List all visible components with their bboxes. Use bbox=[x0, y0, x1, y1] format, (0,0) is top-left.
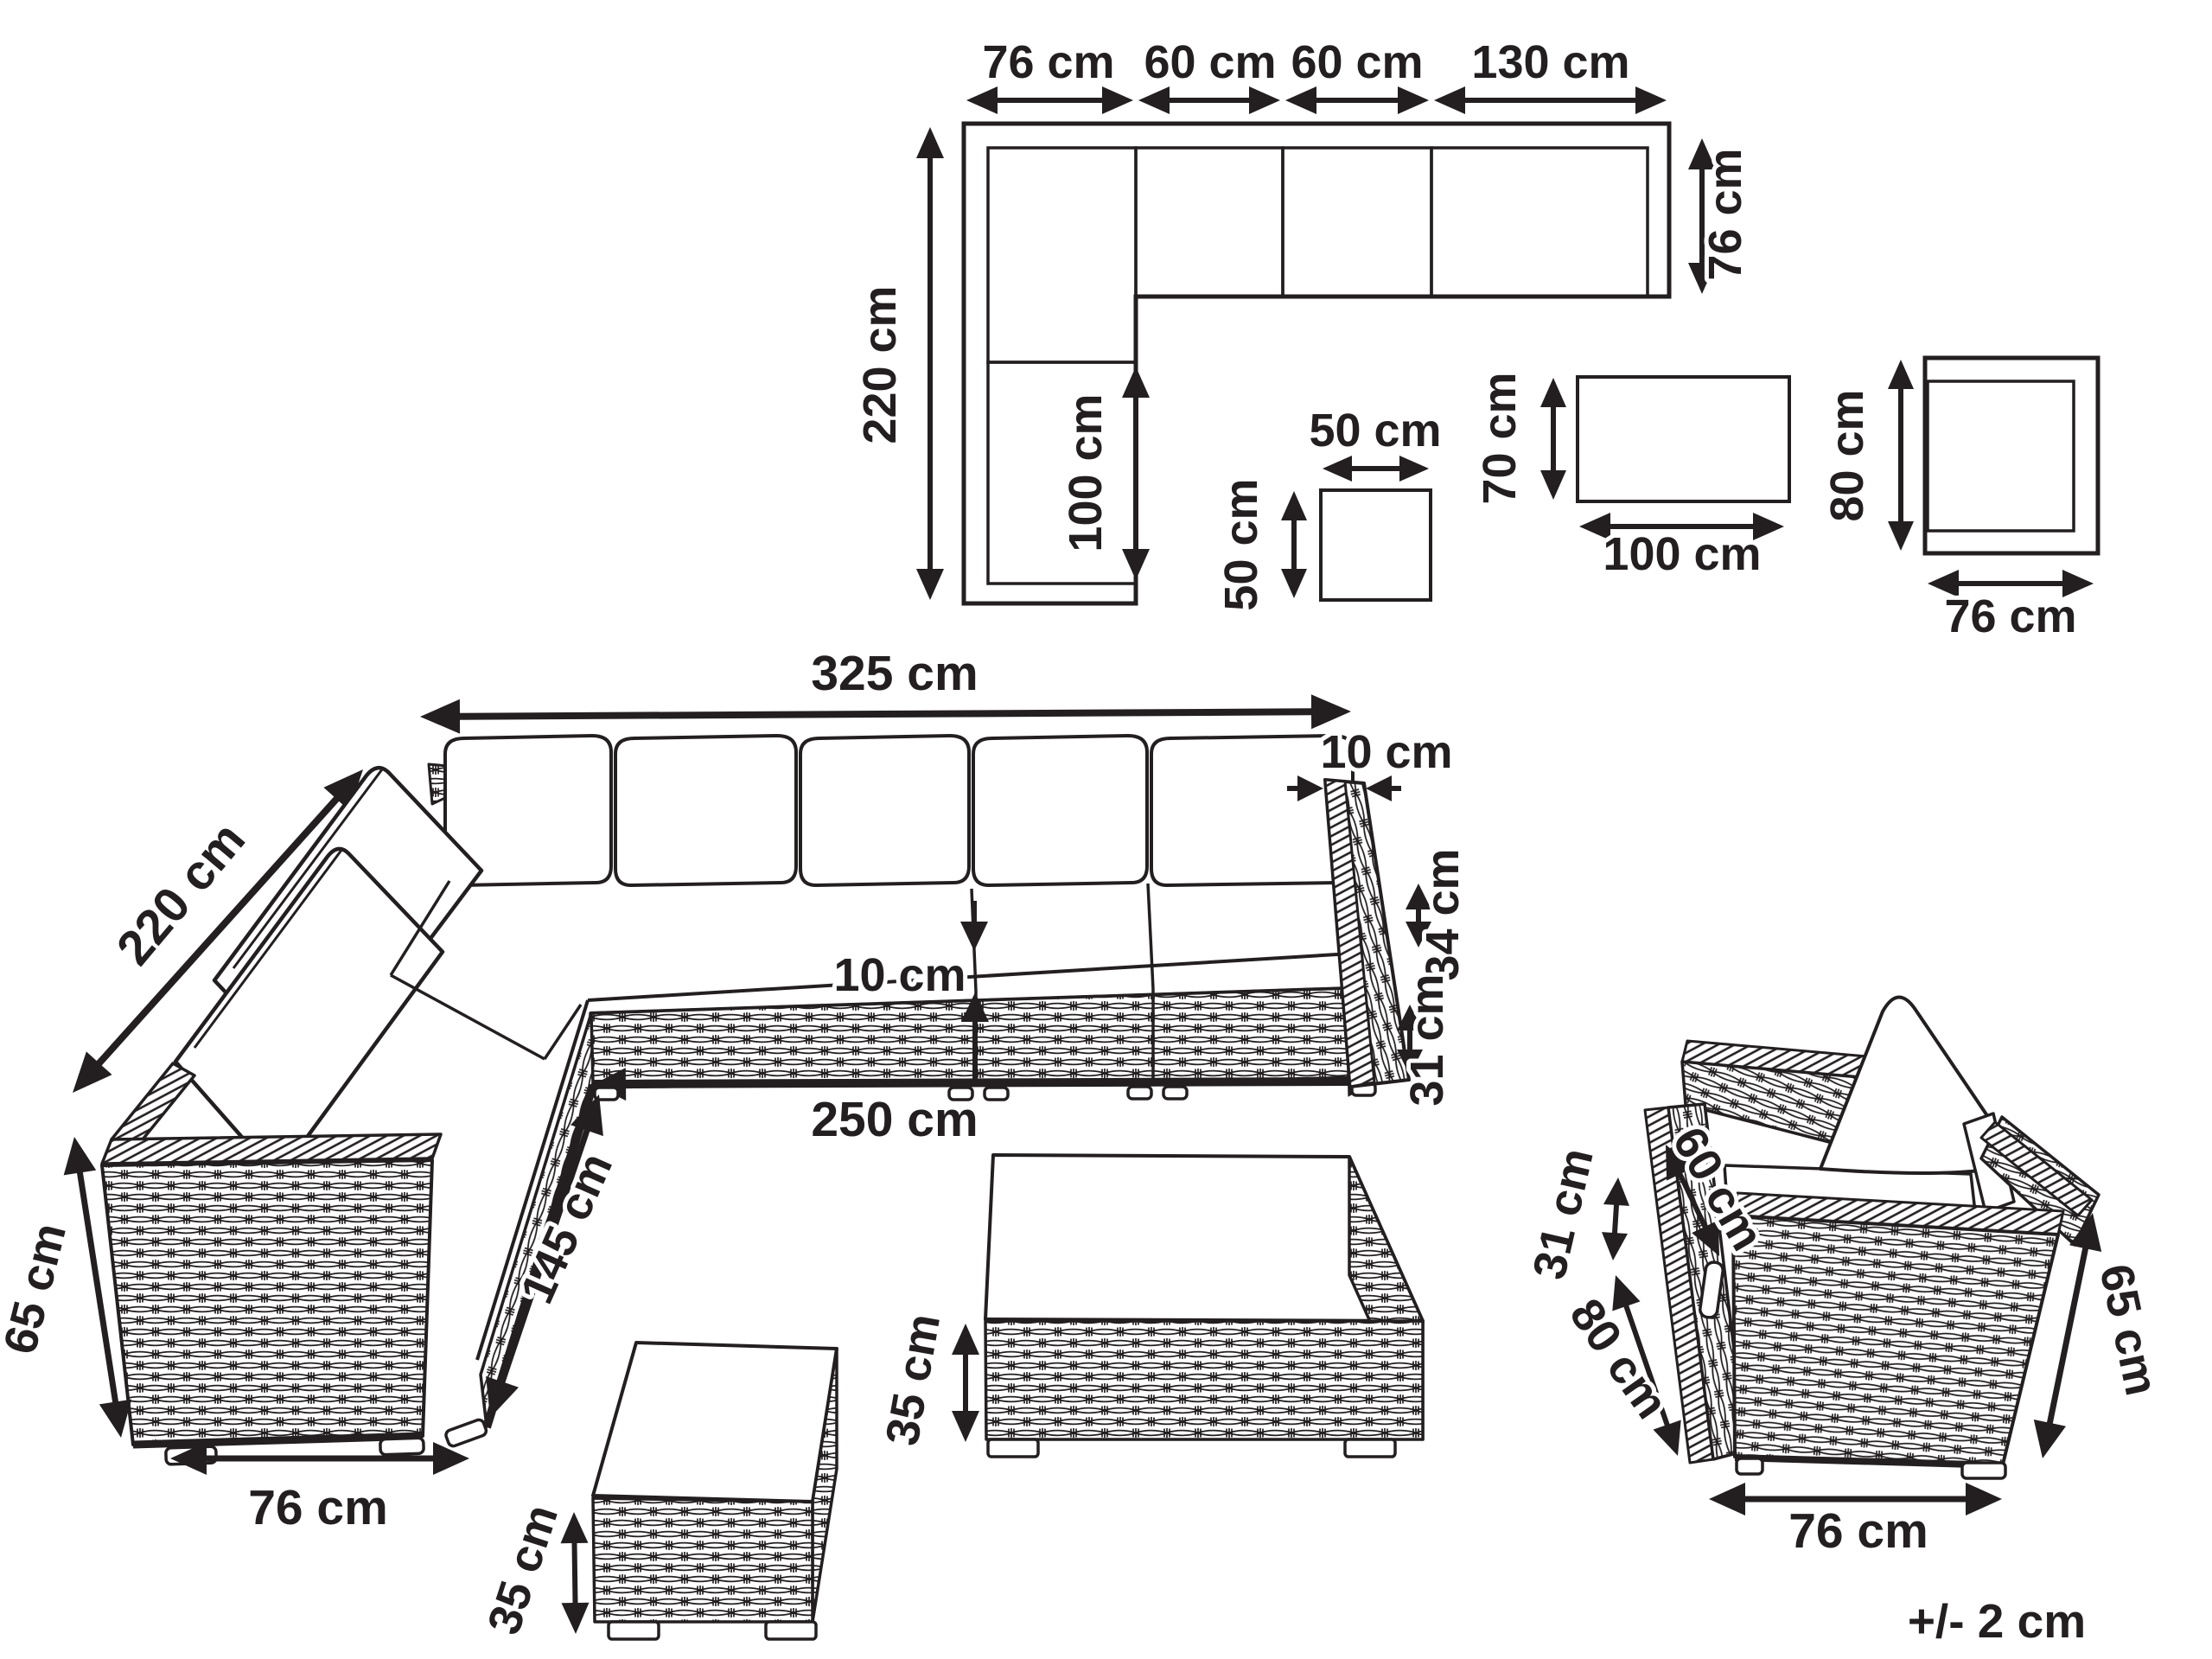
svg-text:250 cm: 250 cm bbox=[811, 1092, 978, 1147]
svg-text:50 cm: 50 cm bbox=[1309, 405, 1441, 456]
svg-text:60 cm: 60 cm bbox=[1291, 36, 1423, 88]
svg-text:100 cm: 100 cm bbox=[1060, 393, 1112, 552]
svg-text:31 cm: 31 cm bbox=[1401, 973, 1453, 1106]
svg-text:80 cm: 80 cm bbox=[1821, 389, 1873, 521]
svg-text:34 cm: 34 cm bbox=[1417, 848, 1469, 980]
svg-text:+/- 2 cm: +/- 2 cm bbox=[1908, 1594, 2086, 1648]
svg-text:76 cm: 76 cm bbox=[1944, 590, 2076, 642]
svg-text:10 cm: 10 cm bbox=[1320, 726, 1452, 778]
svg-text:10 cm: 10 cm bbox=[833, 949, 966, 1001]
svg-text:76 cm: 76 cm bbox=[1699, 148, 1751, 280]
svg-text:76 cm: 76 cm bbox=[1788, 1503, 1928, 1559]
svg-text:76 cm: 76 cm bbox=[982, 36, 1114, 88]
svg-text:50 cm: 50 cm bbox=[1215, 478, 1267, 610]
svg-text:76 cm: 76 cm bbox=[248, 1480, 388, 1535]
svg-text:60 cm: 60 cm bbox=[1144, 36, 1276, 88]
svg-text:325 cm: 325 cm bbox=[811, 646, 978, 701]
svg-text:70 cm: 70 cm bbox=[1474, 372, 1526, 504]
svg-text:220 cm: 220 cm bbox=[854, 285, 906, 443]
svg-text:100 cm: 100 cm bbox=[1603, 528, 1761, 580]
svg-text:130 cm: 130 cm bbox=[1471, 36, 1629, 88]
